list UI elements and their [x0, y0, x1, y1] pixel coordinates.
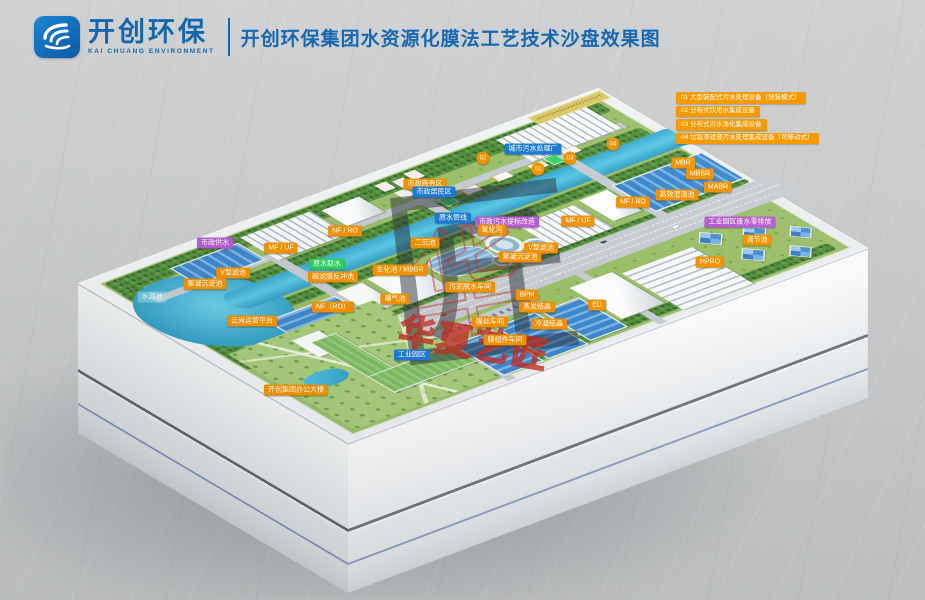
header: 开创环保 KAI CHUANG ENVIRONMENT 开创环保集团水资源化膜法…: [34, 16, 661, 58]
logo-text: 开创环保: [88, 19, 215, 46]
legend-item: 01 大型装配式污水处理设备（快装模式）: [676, 92, 806, 104]
pavilion-tent: [742, 226, 766, 239]
legend-item: 02 分布式饮用水集成设备: [676, 106, 760, 118]
legend-item: 03 分布式污水净化集成设备: [676, 119, 767, 131]
header-divider: [228, 18, 230, 56]
wave-logo-icon: [40, 22, 74, 52]
sandbox-model: [0, 0, 925, 600]
page-title: 开创环保集团水资源化膜法工艺技术沙盘效果图: [241, 24, 661, 51]
car: [719, 199, 726, 202]
stage: 开创环保 KAI CHUANG ENVIRONMENT 开创环保集团水资源化膜法…: [0, 0, 925, 600]
car: [556, 272, 563, 275]
legend-item: 04 垃圾渗滤液污水处理集成设备（可移动式）: [676, 133, 819, 145]
logo-text-block: 开创环保 KAI CHUANG ENVIRONMENT: [88, 19, 215, 56]
logo-subtext: KAI CHUANG ENVIRONMENT: [88, 49, 215, 56]
equipment-legend: 01 大型装配式污水处理设备（快装模式）02 分布式饮用水集成设备03 分布式污…: [676, 92, 819, 144]
pavilion-tent: [699, 232, 723, 245]
pavilion-tent: [789, 245, 812, 258]
pavilion-tent: [741, 248, 765, 261]
company-logo-icon: [34, 16, 80, 58]
car: [486, 287, 493, 290]
pavilion-tent: [789, 226, 812, 239]
